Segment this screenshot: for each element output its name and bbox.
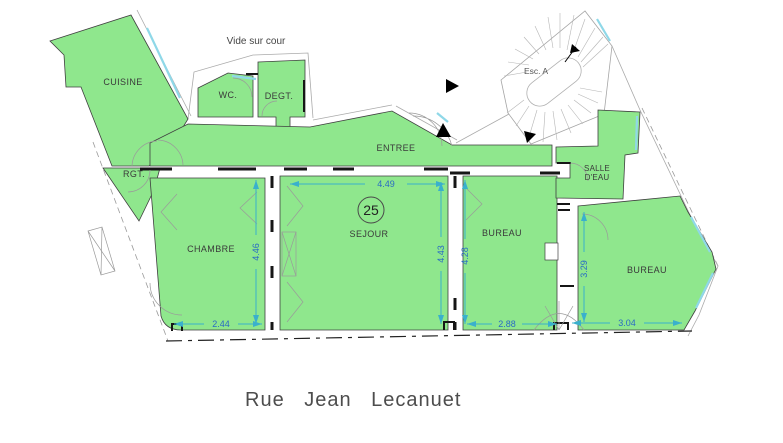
room-entree-shape <box>150 111 552 166</box>
courtyard-label: Vide sur cour <box>227 36 286 47</box>
dim-bureau-right-depth: 3.29 <box>579 260 589 278</box>
sejour-label: SEJOUR <box>350 229 389 239</box>
cuisine-label: CUISINE <box>103 77 142 87</box>
room-salle-deau-shape <box>556 110 640 199</box>
bureau-center-label: BUREAU <box>482 228 522 238</box>
stair-up-arrow-icon <box>570 44 580 53</box>
street-name: Rue Jean Lecanuet <box>245 389 461 411</box>
stair-landing-wall-line <box>456 114 509 143</box>
entree-window <box>437 113 448 122</box>
chambre-cupboard <box>88 227 115 275</box>
salle-deau-window <box>636 116 637 150</box>
dim-bureau-right-width: 3.04 <box>618 318 636 328</box>
entree-label: ENTREE <box>377 143 416 153</box>
stair-down-arrow-icon <box>524 131 536 143</box>
room-bureau-right-shape <box>578 196 716 330</box>
staircase-label: Esc. A <box>524 66 548 76</box>
dim-sejour-width: 4.49 <box>377 179 395 189</box>
floor-plan-svg: Esc. A <box>0 0 783 443</box>
wc-label: WC. <box>219 90 238 100</box>
arrow-right-icon <box>446 79 459 93</box>
staircase: Esc. A <box>501 11 612 144</box>
bureau-right-label: BUREAU <box>627 265 667 275</box>
salle-deau-label-line1: SALLE <box>584 164 610 173</box>
stair-window <box>597 19 610 41</box>
salle-deau-label-line2: D'EAU <box>585 173 610 182</box>
degt-label: DEGT. <box>265 91 294 101</box>
street-alignment-line <box>166 331 692 341</box>
stair-core <box>522 53 587 112</box>
dim-chambre-depth: 4.46 <box>251 243 261 261</box>
dim-bureau-center-depth: 4.28 <box>460 247 470 265</box>
chambre-label: CHAMBRE <box>187 244 235 254</box>
dim-bureau-center-width: 2.88 <box>498 319 516 329</box>
chimney-breast <box>545 243 558 260</box>
unit-number: 25 <box>363 202 379 218</box>
dim-sejour-depth: 4.43 <box>436 245 446 263</box>
dim-chambre-width: 2.44 <box>212 319 230 329</box>
rgt-label: RGT. <box>123 169 145 179</box>
